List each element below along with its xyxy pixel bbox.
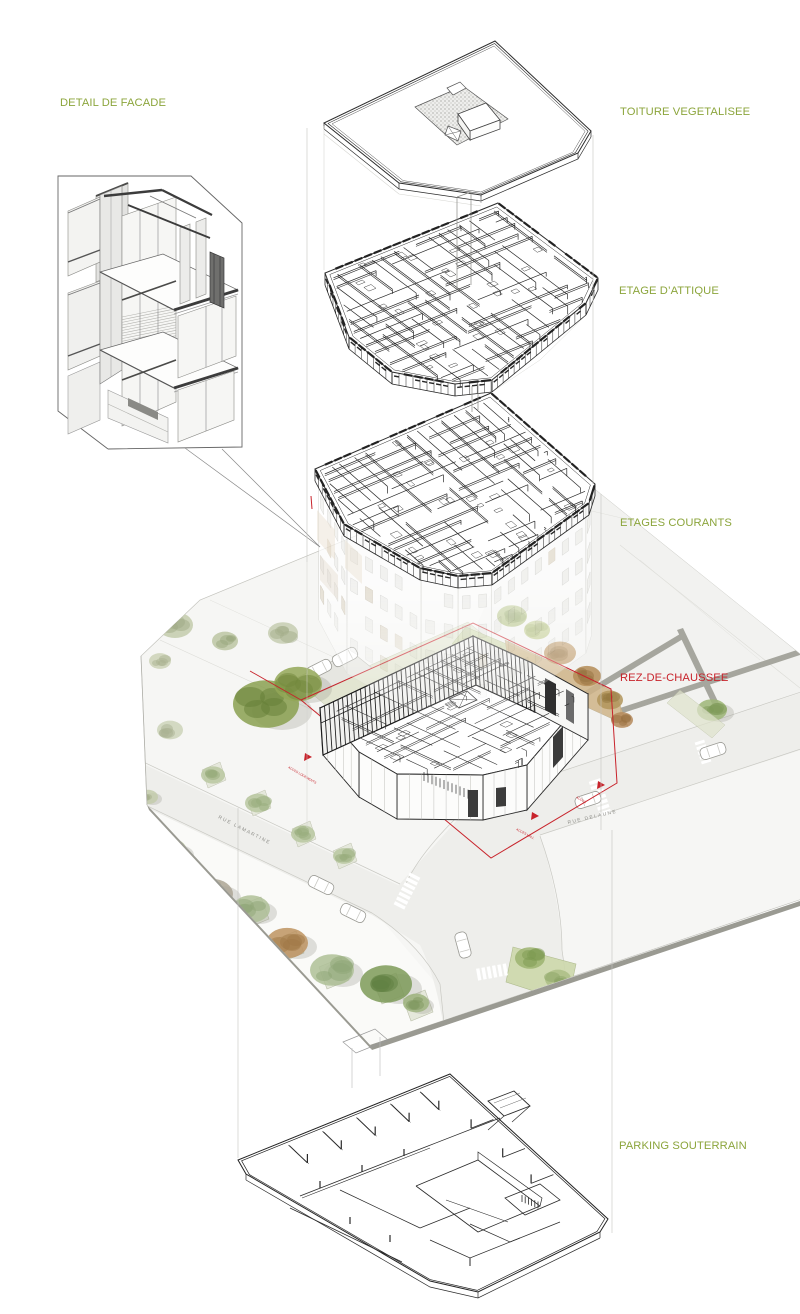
svg-text:PARKING SOUTERRAIN: PARKING SOUTERRAIN (619, 1140, 747, 1152)
svg-text:REZ-DE-CHAUSSEE: REZ-DE-CHAUSSEE (620, 672, 728, 684)
svg-text:ETAGES COURANTS: ETAGES COURANTS (620, 517, 732, 529)
svg-text:DETAIL DE FACADE: DETAIL DE FACADE (60, 97, 166, 109)
svg-text:ETAGE D’ATTIQUE: ETAGE D’ATTIQUE (619, 285, 719, 297)
svg-text:TOITURE VEGETALISEE: TOITURE VEGETALISEE (620, 106, 750, 118)
